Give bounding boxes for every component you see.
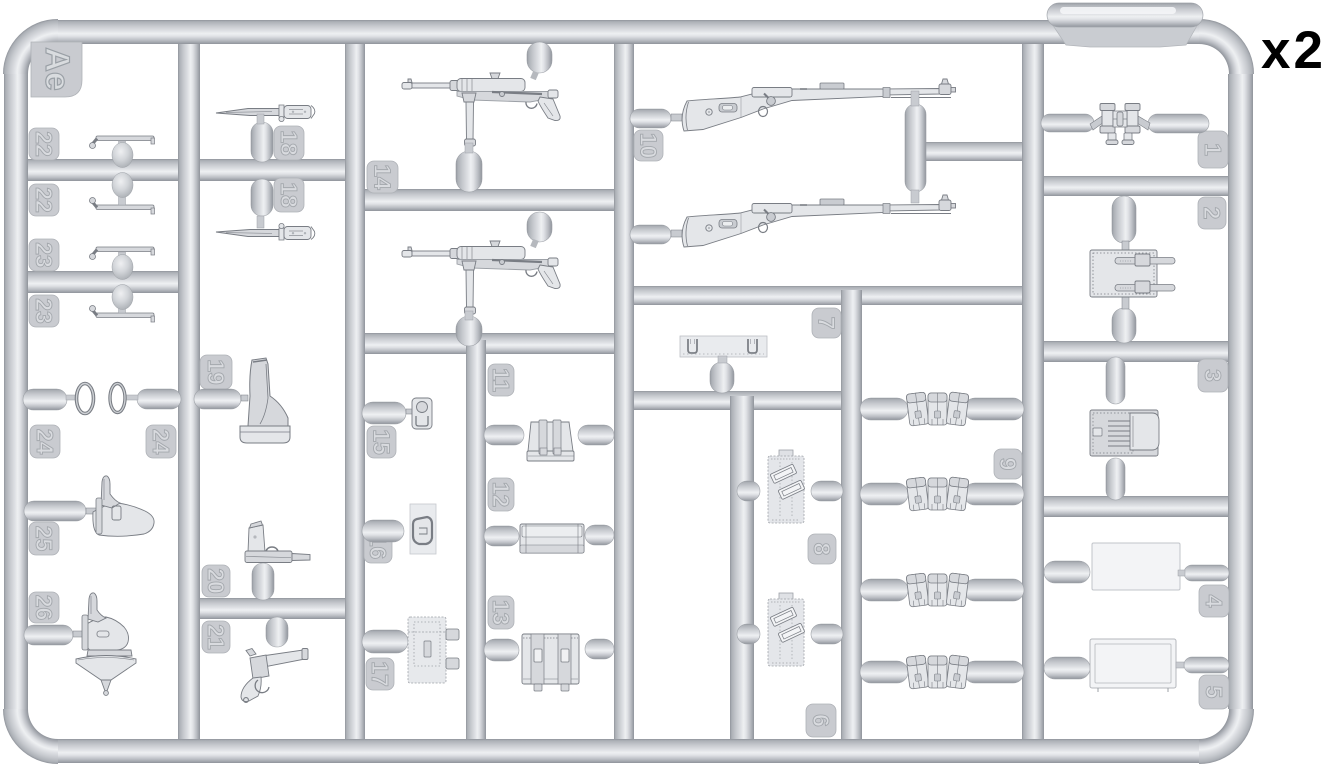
svg-text:25: 25 xyxy=(31,526,57,552)
svg-text:10: 10 xyxy=(636,133,662,159)
svg-text:7: 7 xyxy=(814,317,840,330)
svg-text:12: 12 xyxy=(488,482,514,508)
svg-text:17: 17 xyxy=(367,661,393,687)
svg-text:21: 21 xyxy=(203,624,229,650)
svg-text:24: 24 xyxy=(148,429,174,455)
svg-text:23: 23 xyxy=(31,242,57,268)
svg-text:26: 26 xyxy=(31,595,57,621)
svg-text:2: 2 xyxy=(1199,207,1225,220)
svg-text:13: 13 xyxy=(488,600,514,626)
svg-text:Ae: Ae xyxy=(38,47,76,90)
svg-text:1: 1 xyxy=(1200,143,1226,156)
svg-text:3: 3 xyxy=(1200,369,1226,382)
svg-text:24: 24 xyxy=(32,429,58,455)
svg-text:18: 18 xyxy=(276,130,302,156)
svg-text:8: 8 xyxy=(809,543,835,556)
svg-text:14: 14 xyxy=(370,164,396,190)
svg-text:22: 22 xyxy=(31,131,57,157)
svg-text:19: 19 xyxy=(203,359,229,385)
svg-text:23: 23 xyxy=(31,298,57,324)
svg-text:18: 18 xyxy=(276,182,302,208)
svg-text:4: 4 xyxy=(1201,595,1227,608)
svg-text:6: 6 xyxy=(808,714,834,727)
svg-text:22: 22 xyxy=(31,187,57,213)
svg-text:11: 11 xyxy=(488,368,514,393)
svg-text:5: 5 xyxy=(1201,686,1227,699)
svg-text:x2: x2 xyxy=(1261,21,1326,80)
svg-text:20: 20 xyxy=(203,568,229,594)
svg-text:15: 15 xyxy=(369,429,395,455)
svg-text:9: 9 xyxy=(995,458,1021,471)
